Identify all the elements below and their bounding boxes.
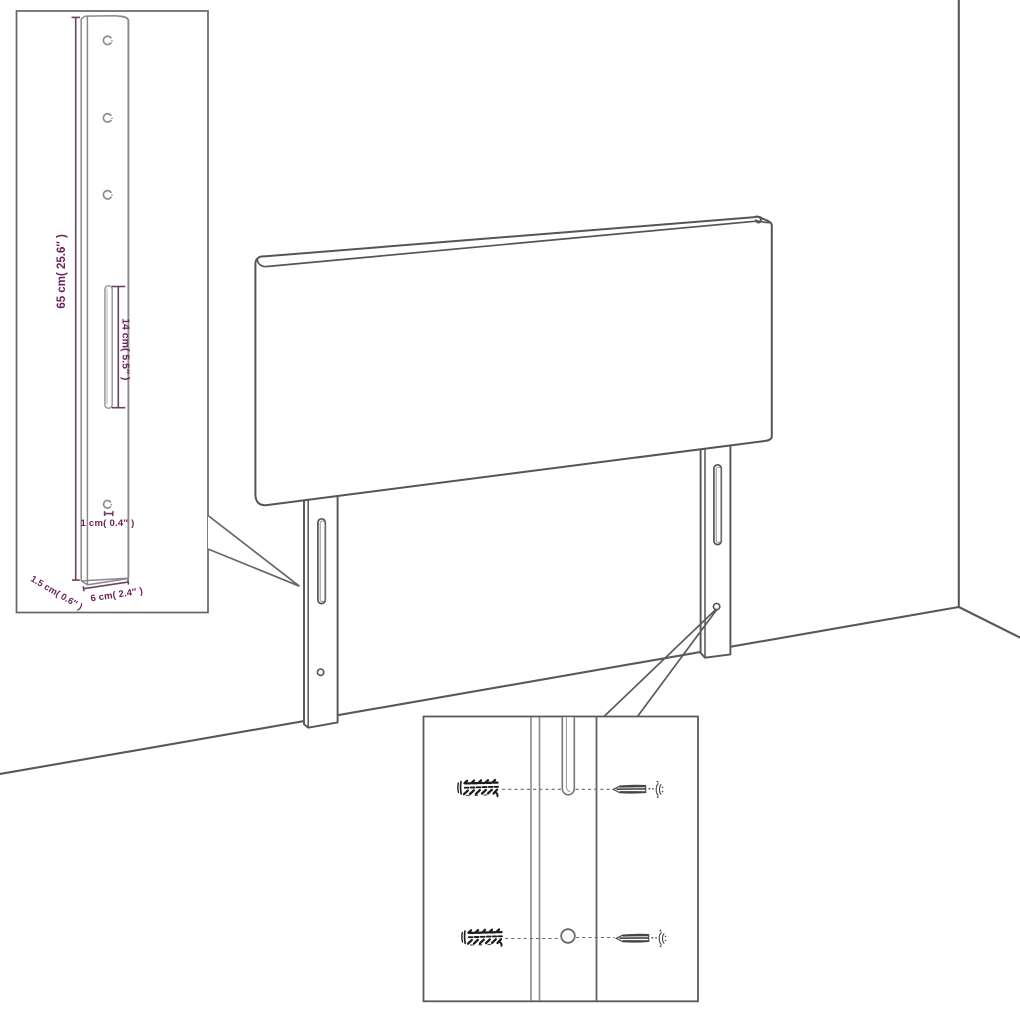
svg-text:65 cm( 25.6″ ): 65 cm( 25.6″ ): [56, 234, 68, 309]
svg-text:14 cm( 5.5″ ): 14 cm( 5.5″ ): [120, 318, 132, 380]
svg-text:1 cm( 0.4″ ): 1 cm( 0.4″ ): [81, 518, 135, 529]
